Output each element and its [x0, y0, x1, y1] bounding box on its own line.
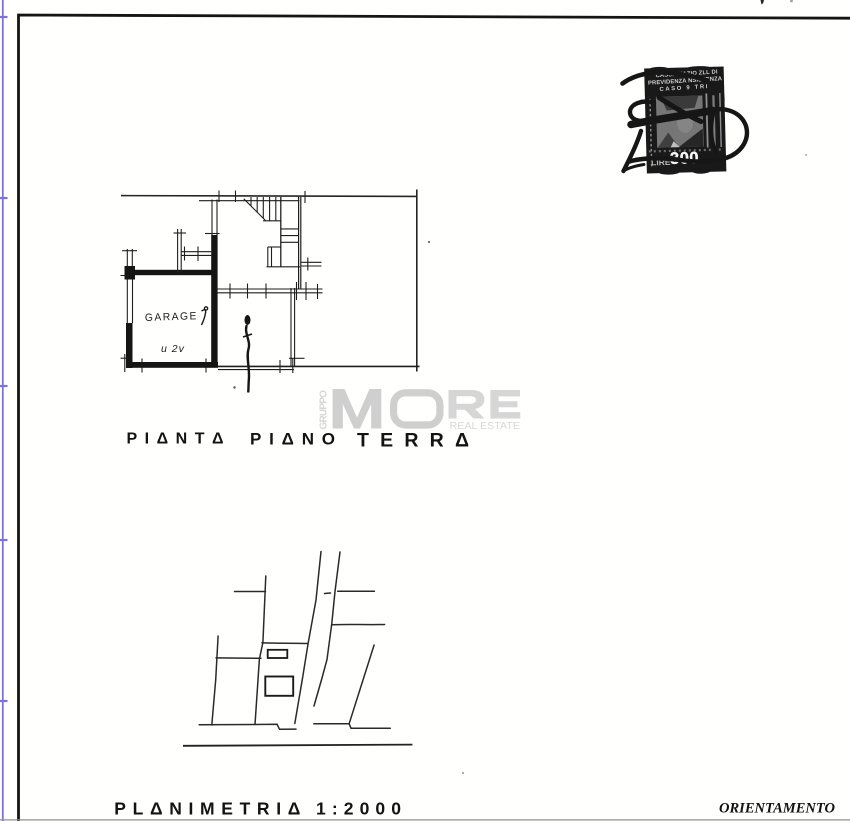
svg-text:PIΔNTΔ: PIΔNTΔ: [127, 431, 224, 448]
svg-text:ORIENTAMENTO: ORIENTAMENTO: [719, 801, 835, 817]
svg-text:GARAGE: GARAGE: [145, 310, 198, 324]
svg-text:TERRΔ: TERRΔ: [357, 430, 469, 452]
svg-text:GRUPPO: GRUPPO: [319, 389, 330, 430]
svg-text:PIΔNO: PIΔNO: [250, 430, 335, 449]
svg-text:u 2v: u 2v: [161, 343, 185, 355]
svg-text:1:2000: 1:2000: [316, 799, 401, 819]
svg-text:PLΔNIMETRIΔ: PLΔNIMETRIΔ: [114, 799, 300, 819]
